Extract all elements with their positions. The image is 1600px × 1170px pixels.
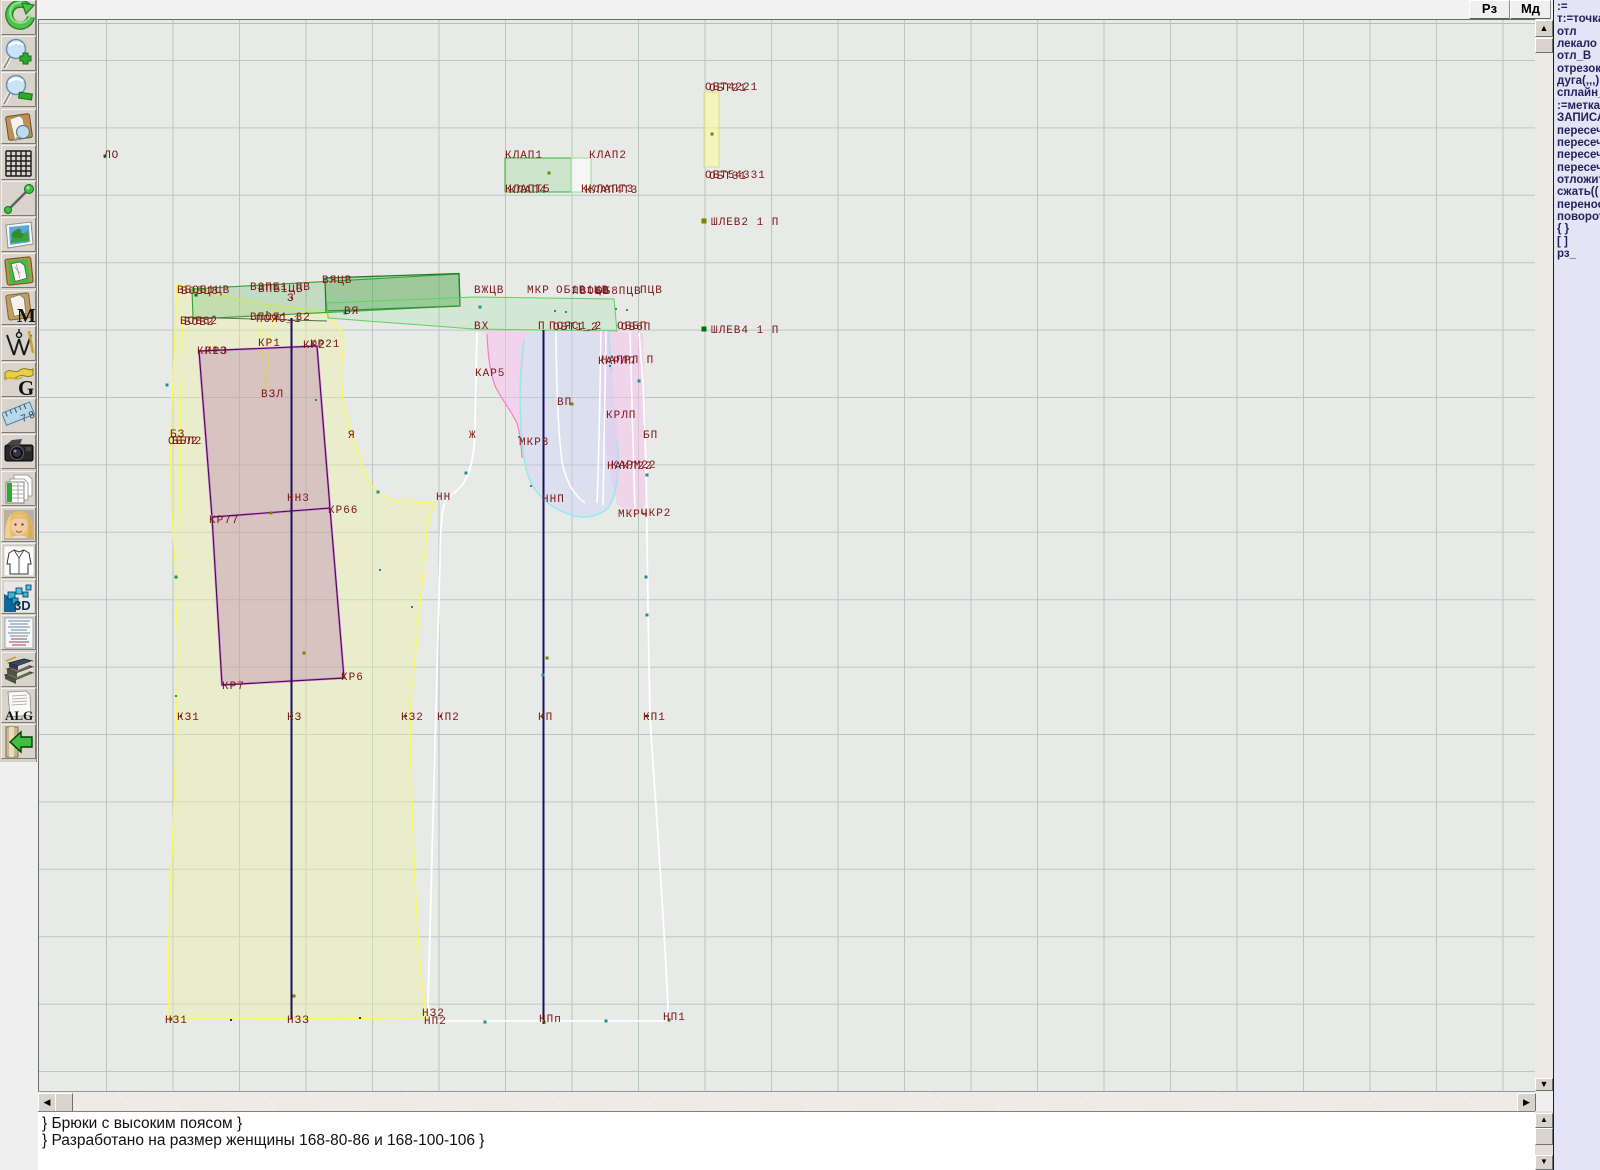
svg-text:ВЗЛ: ВЗЛ bbox=[261, 389, 284, 401]
svg-text:ВП: ВП bbox=[557, 397, 572, 409]
svg-text:ШЛЕВ2 1 П: ШЛЕВ2 1 П bbox=[711, 217, 779, 229]
svg-text:НП2: НП2 bbox=[424, 1016, 447, 1028]
svg-text:МКР3: МКР3 bbox=[519, 437, 549, 449]
svg-text:П: П bbox=[538, 321, 546, 333]
svg-text:ОБТ1_2: ОБТ1_2 bbox=[553, 322, 599, 334]
svg-text:КР66: КР66 bbox=[328, 505, 358, 517]
svg-text:ПОЯС_1: ПОЯС_1 bbox=[256, 314, 302, 326]
svg-text:ШЛЕВ4 1 П: ШЛЕВ4 1 П bbox=[711, 325, 779, 337]
svg-text:ВПБ1ЦВ: ВПБ1ЦВ bbox=[258, 284, 304, 296]
svg-text:КЛАП1: КЛАП1 bbox=[505, 150, 543, 162]
svg-text:ННП: ННП bbox=[542, 494, 565, 506]
svg-text:КР2: КР2 bbox=[303, 340, 326, 352]
svg-text:КП: КП bbox=[538, 712, 553, 724]
svg-text:КП2: КП2 bbox=[437, 712, 460, 724]
svg-text:НЗ1: НЗ1 bbox=[165, 1015, 188, 1027]
svg-text:З: З bbox=[287, 293, 295, 305]
svg-text:КЗ: КЗ bbox=[287, 712, 302, 724]
svg-text:Я: Я bbox=[348, 430, 356, 442]
svg-text:ЧКР2: ЧКР2 bbox=[641, 508, 671, 520]
svg-text:ВЯЦВ: ВЯЦВ bbox=[322, 275, 352, 287]
svg-text:КР7: КР7 bbox=[222, 681, 245, 693]
svg-text:M: M bbox=[17, 305, 36, 325]
svg-text:КЛАП2: КЛАП2 bbox=[589, 150, 627, 162]
svg-text:G: G bbox=[18, 376, 34, 397]
svg-text:НЗЗ: НЗЗ bbox=[287, 1015, 310, 1027]
svg-text:ВЖЦВ: ВЖЦВ bbox=[474, 285, 504, 297]
svg-text:КР1: КР1 bbox=[258, 338, 281, 350]
svg-text:КП1: КП1 bbox=[643, 712, 666, 724]
svg-text:3D: 3D bbox=[14, 598, 31, 613]
svg-text:КР6: КР6 bbox=[341, 672, 364, 684]
svg-text:ПЦВ: ПЦВ bbox=[640, 285, 663, 297]
svg-text:КРЛП: КРЛП bbox=[606, 410, 636, 422]
svg-text:ОБТ21: ОБТ21 bbox=[709, 83, 747, 95]
svg-text:НАПРЛ П: НАПРЛ П bbox=[601, 355, 654, 367]
svg-text:НН: НН bbox=[436, 492, 451, 504]
svg-text:ББЛ2: ББЛ2 bbox=[172, 436, 202, 448]
svg-text:КЛАП4: КЛАП4 bbox=[509, 185, 547, 197]
svg-text:НПп: НПп bbox=[539, 1014, 562, 1026]
svg-text:КАРМ22: КАРМ22 bbox=[611, 460, 657, 472]
svg-text:ВХ: ВХ bbox=[474, 321, 489, 333]
svg-text:ЛО: ЛО bbox=[103, 150, 119, 162]
svg-text:НП1: НП1 bbox=[663, 1012, 686, 1024]
svg-text:КЗ1: КЗ1 bbox=[177, 712, 200, 724]
svg-text:БОБ2: БОБ2 bbox=[184, 317, 214, 329]
svg-text:ВОБЦ8: ВОБЦ8 bbox=[181, 286, 219, 298]
svg-text:ALG: ALG bbox=[5, 708, 33, 723]
svg-text:БП: БП bbox=[643, 430, 658, 442]
svg-text:ККЛАПТ3: ККЛАПТ3 bbox=[581, 184, 634, 196]
svg-text:КРЗ: КРЗ bbox=[205, 346, 228, 358]
svg-text:МКР: МКР bbox=[527, 285, 550, 297]
svg-text:Ж: Ж bbox=[469, 430, 477, 442]
svg-text:НН3: НН3 bbox=[287, 493, 310, 505]
svg-text:ОБТ31: ОБТ31 bbox=[709, 171, 747, 183]
svg-text:КАР5: КАР5 bbox=[475, 368, 505, 380]
svg-text:КР77: КР77 bbox=[209, 515, 239, 527]
svg-text:ВЯ: ВЯ bbox=[344, 306, 359, 318]
svg-text:ОБ8ПЦВ: ОБ8ПЦВ bbox=[596, 286, 642, 298]
svg-text:ОБ6П: ОБ6П bbox=[621, 322, 651, 334]
svg-text:КЗ2: КЗ2 bbox=[401, 712, 424, 724]
